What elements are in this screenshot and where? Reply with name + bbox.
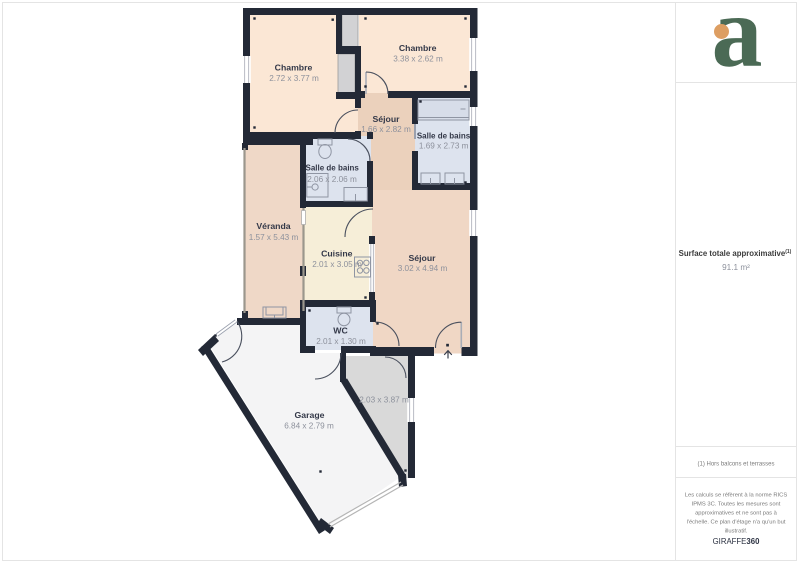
svg-text:IPMS 3C. Toutes les mesures so: IPMS 3C. Toutes les mesures sont xyxy=(692,502,781,508)
svg-text:WC: WC xyxy=(333,326,348,336)
svg-text:2.01 x 3.05 m: 2.01 x 3.05 m xyxy=(312,260,362,269)
svg-text:1.57 x 5.43 m: 1.57 x 5.43 m xyxy=(249,233,299,242)
svg-text:3.02 x 4.94 m: 3.02 x 4.94 m xyxy=(398,264,448,273)
svg-text:Garage: Garage xyxy=(295,410,325,420)
svg-text:GIRAFFE360: GIRAFFE360 xyxy=(713,537,760,546)
svg-text:1.69 x 2.73 m: 1.69 x 2.73 m xyxy=(419,142,469,151)
svg-text:Chambre: Chambre xyxy=(275,62,313,72)
svg-text:Salle de bains: Salle de bains xyxy=(306,164,360,173)
svg-text:2.06 x 2.06 m: 2.06 x 2.06 m xyxy=(307,175,357,184)
svg-text:a: a xyxy=(712,0,763,89)
svg-text:Séjour: Séjour xyxy=(408,253,436,263)
svg-text:(1) Hors balcons et terrasses: (1) Hors balcons et terrasses xyxy=(697,462,774,468)
svg-text:Chambre: Chambre xyxy=(399,43,437,53)
svg-text:illustratif.: illustratif. xyxy=(725,529,748,535)
svg-text:Salle de bains: Salle de bains xyxy=(417,132,471,141)
svg-text:Véranda: Véranda xyxy=(256,221,290,231)
svg-text:2.72 x 3.77 m: 2.72 x 3.77 m xyxy=(269,74,319,83)
svg-text:approximatives et ne sont pas: approximatives et ne sont pas à xyxy=(695,511,778,517)
svg-text:Séjour: Séjour xyxy=(372,114,400,124)
svg-text:3.38 x 2.62 m: 3.38 x 2.62 m xyxy=(393,54,443,63)
svg-text:91.1 m²: 91.1 m² xyxy=(722,263,750,272)
svg-text:2.01 x 1.30 m: 2.01 x 1.30 m xyxy=(316,337,366,346)
svg-text:1.66 x 2.82 m: 1.66 x 2.82 m xyxy=(361,125,411,134)
svg-text:l'échelle. Ce plan d'étage n'a: l'échelle. Ce plan d'étage n'a qu'un but xyxy=(687,520,786,526)
svg-text:Surface totale approximative(1: Surface totale approximative(1) xyxy=(679,249,792,258)
svg-text:2.03 x 3.87 m: 2.03 x 3.87 m xyxy=(359,396,409,405)
svg-text:Cuisine: Cuisine xyxy=(321,249,353,259)
svg-text:Les calculs se réfèrent à la n: Les calculs se réfèrent à la norme RICS xyxy=(685,493,788,499)
svg-text:6.84 x 2.79 m: 6.84 x 2.79 m xyxy=(284,422,334,431)
